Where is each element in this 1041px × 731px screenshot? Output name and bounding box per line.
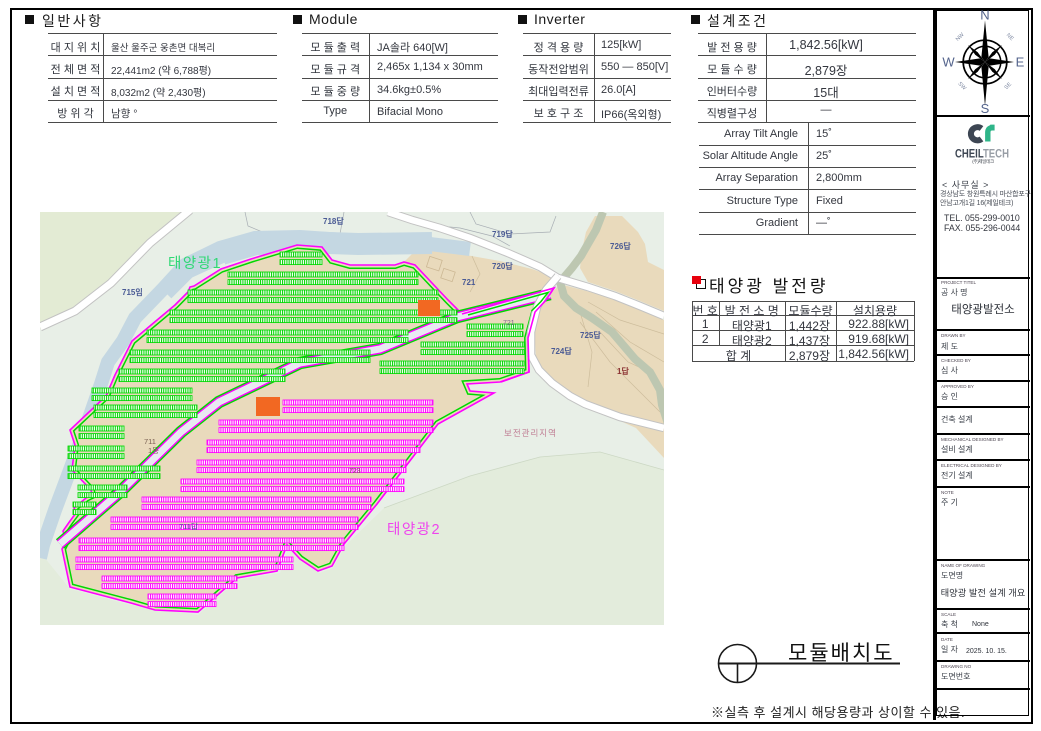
svg-text:724답: 724답 <box>551 346 572 356</box>
svg-text:보전관리지역: 보전관리지역 <box>504 428 557 438</box>
svg-text:1답: 1답 <box>617 366 629 376</box>
svg-text:711답: 711답 <box>179 521 198 531</box>
svg-text:715임: 715임 <box>122 287 143 297</box>
svg-text:SW: SW <box>956 81 967 92</box>
svg-text:719답: 719답 <box>492 229 513 239</box>
svg-text:725답: 725답 <box>580 330 601 340</box>
svg-text:720답: 720답 <box>492 261 513 271</box>
svg-text:E: E <box>1016 55 1025 70</box>
svg-text:721: 721 <box>503 320 515 327</box>
svg-text:N: N <box>980 10 989 23</box>
svg-text:1동: 1동 <box>148 446 159 455</box>
svg-text:726답: 726답 <box>610 241 631 251</box>
svg-text:711: 711 <box>144 437 156 446</box>
svg-text:NE: NE <box>1005 32 1015 42</box>
svg-text:S: S <box>981 101 990 115</box>
svg-text:723: 723 <box>349 468 361 475</box>
svg-text:태양광2: 태양광2 <box>387 521 441 538</box>
svg-text:NW: NW <box>955 31 966 42</box>
svg-text:721: 721 <box>462 278 476 287</box>
svg-text:태양광1: 태양광1 <box>168 255 222 272</box>
svg-text:718답: 718답 <box>323 216 344 226</box>
svg-text:SE: SE <box>1004 81 1014 91</box>
svg-text:W: W <box>942 55 955 70</box>
